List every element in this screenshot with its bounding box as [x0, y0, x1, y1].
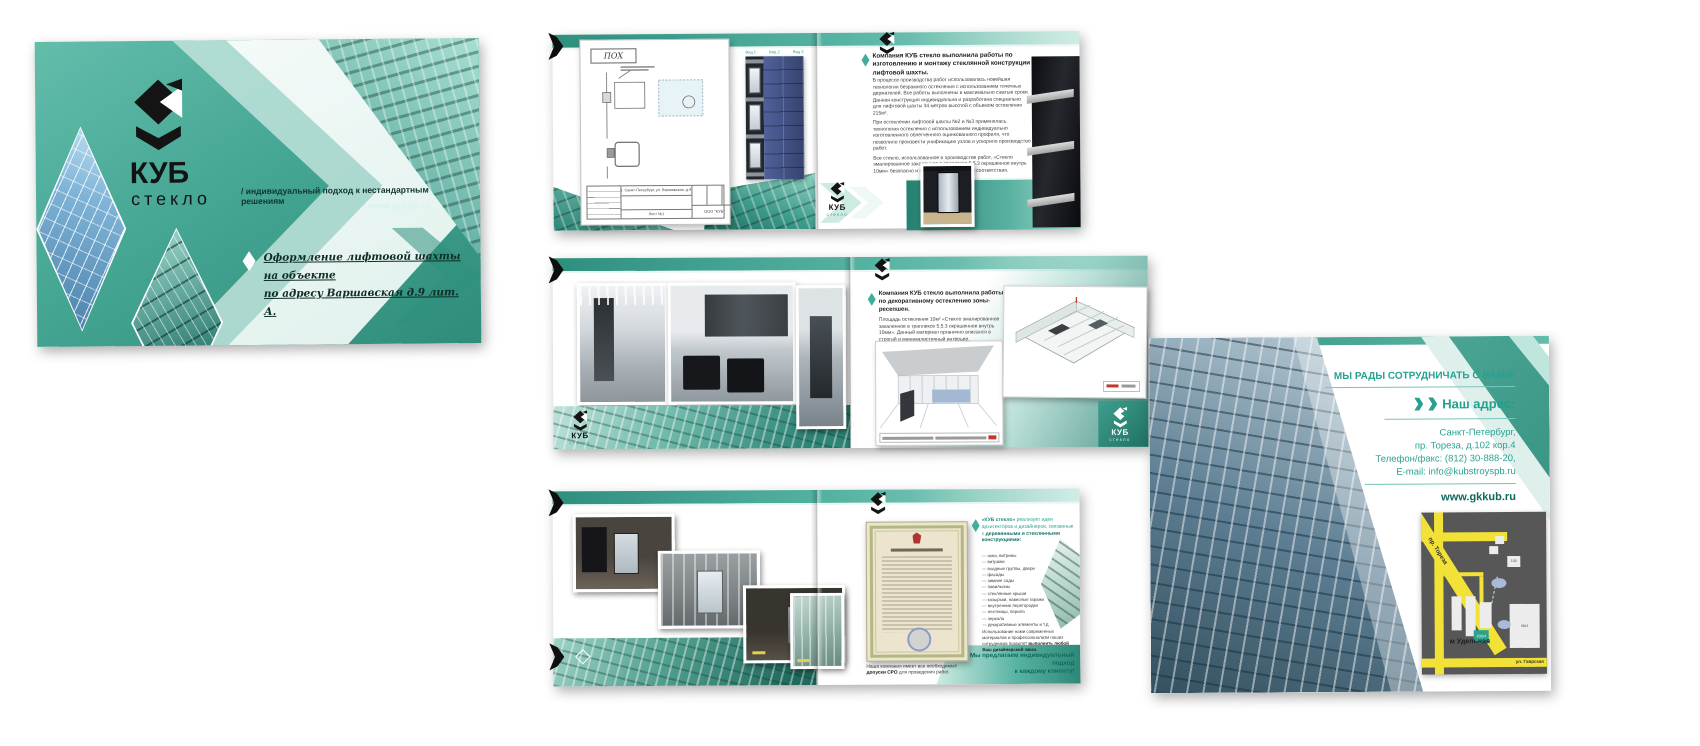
diamond-bullet-icon [972, 519, 980, 532]
elevation-view-labels: Вид 1Вид 2Вид 3 [745, 49, 803, 54]
services-lead: «КУБ стекло» реализует идеи архитекторов… [982, 517, 1076, 544]
map-metro-label: м Удельная [1450, 638, 1490, 645]
project-line: по адресу Варшавская д.9 лит. А. [264, 286, 459, 318]
kub-logo-icon [573, 410, 587, 431]
header-band [552, 489, 1079, 507]
brand-name: КУБ [829, 203, 846, 212]
kub-logo-icon [830, 182, 844, 203]
brand-name: КУБ [1111, 428, 1128, 437]
title-block-grid [692, 186, 736, 205]
kub-logo-icon [875, 258, 890, 281]
map-building [1452, 596, 1462, 630]
diamond-bullet-icon [243, 251, 256, 271]
map-street-label: ул. Гаврская [1516, 659, 1544, 664]
elevator-door-column [745, 56, 764, 179]
photo-interior-partition [796, 285, 847, 429]
shaft-elevation-drawing [745, 56, 804, 179]
photo-glass-interior [790, 593, 844, 669]
lead-bold: деревянными и стеклянными конструкциями: [982, 530, 1060, 543]
glass-facade-photo [37, 128, 125, 330]
title-block-company: ООО "КУБ" [692, 205, 736, 218]
brand-subname: стекло [1109, 437, 1130, 442]
drawing-sketch [585, 64, 724, 183]
round-stamp-icon [907, 627, 931, 651]
photo-elevator [920, 163, 974, 227]
location-map: пр. Тореза 98к1 100 102к4 м Удельная ул.… [1421, 512, 1547, 675]
brand-name: КУБ [571, 431, 588, 440]
kub-corner-card: КУБ стекло [1098, 401, 1148, 447]
address-line: Санкт-Петербург, [1299, 426, 1515, 440]
address-line: Телефон/факс: (812) 30-888-20, [1300, 452, 1516, 466]
website-url: www.gkkub.ru [1350, 491, 1516, 504]
service-item: — декоративные элементы и т.д. [982, 621, 1068, 628]
sro-certificate [866, 521, 969, 662]
map-pond [1491, 578, 1506, 588]
kub-logo-lockup: КУБ стекло [569, 410, 591, 445]
kub-logo-icon [879, 31, 894, 54]
interior-render [876, 341, 1000, 430]
services-note: Использование нами современных материало… [982, 629, 1076, 653]
spread-elevator-shaft: ПОХ г. Санкт-Пет [552, 31, 1080, 231]
address-line: E-mail: info@kubstroyspb.ru [1300, 465, 1516, 479]
render-sheet-axonometric [1002, 285, 1147, 398]
sro-text: Наша компания имеет все необходимые [866, 664, 957, 669]
address-block: Санкт-Петербург,пр. Тореза, д.102 кор.4Т… [1299, 426, 1515, 479]
map-building [1480, 602, 1492, 628]
kub-logo-icon [1113, 407, 1127, 428]
brand-subname: стекло [131, 189, 211, 209]
axonometric-render [1003, 286, 1144, 395]
title-block-address: г. Санкт-Петербург, ул. Варшавская, д.9 [621, 186, 691, 196]
map-building-100: 100 [1507, 556, 1520, 567]
certificate-text-lines [882, 556, 952, 632]
title-block-sheet: Лист №1 [622, 209, 692, 218]
view-label: Вид 1 [745, 49, 756, 54]
cover-project-title: Оформление лифтовой шахты на объекте по … [242, 246, 461, 320]
section-heading: Компания КУБ стекло выполнила работы по … [879, 290, 1007, 314]
address-line: пр. Тореза, д.102 кор.4 [1300, 439, 1516, 453]
sro-text: для проведения работ. [899, 671, 950, 676]
cover-diamond-photo-facade [35, 126, 127, 332]
body-paragraph: В процессе производства работ использова… [873, 77, 1031, 117]
certificate-title-bar [891, 548, 943, 551]
spread-services: «КУБ стекло» реализует идеи архитекторов… [552, 489, 1080, 687]
section-body: В процессе производства работ использова… [873, 77, 1032, 177]
kub-logo-icon [870, 492, 885, 515]
sro-note: Наша компания имеет все необходимые допу… [866, 664, 972, 677]
kub-logo-lockup: КУБ стекло [1109, 407, 1131, 442]
sro-bold: допуски СРО [866, 671, 898, 676]
brand-mention: «КУБ стекло» [982, 517, 1017, 523]
diamond-bullet-icon [861, 54, 869, 67]
map-building [1489, 546, 1498, 554]
technical-drawing-sheet: ПОХ г. Санкт-Пет [579, 39, 730, 226]
closing-line: Мы предлагаем индивидуальный подход [970, 652, 1074, 667]
address-label: Наш адрес: [1442, 396, 1515, 411]
body-paragraph: При остеклении лифтовой шахты №2 и №3 пр… [873, 119, 1031, 153]
brand-subname: стекло [827, 212, 848, 217]
title-block-grid [587, 186, 621, 218]
section-body: Площадь остекления 10м² «Стекло эмалиров… [879, 316, 1003, 343]
back-page-contacts: МЫ РАДЫ СОТРУДНИЧАТЬ С ВАМИ! Наш адрес: … [1149, 336, 1551, 693]
map-pond [1498, 620, 1511, 629]
kub-logo-lockup: КУБ стекло [826, 182, 848, 217]
view-label: Вид 3 [793, 49, 804, 54]
kub-logo-icon [134, 77, 183, 153]
brochure-collage: КУБ стекло / индивидуальный подход к нес… [0, 0, 1700, 746]
brand-subname: стекло [569, 440, 590, 445]
shaft-3d-render [1031, 56, 1080, 227]
drawing-title-block: г. Санкт-Петербург, ул. Варшавская, д.9 … [586, 185, 724, 220]
map-building [1495, 536, 1504, 544]
map-building-98k1: 98к1 [1510, 604, 1540, 648]
closing-line: к каждому клиенту! [1015, 668, 1075, 675]
address-label-row: Наш адрес: [1329, 396, 1515, 412]
chevron-icon [1414, 398, 1423, 411]
cover-diamond-photo-roof [130, 227, 224, 347]
brand-name: КУБ [130, 159, 190, 190]
view-label: Вид 2 [769, 49, 780, 54]
render-sheet-perspective [875, 340, 1003, 446]
glass-panel-column [763, 56, 804, 179]
cover-page: КУБ стекло / индивидуальный подход к нес… [35, 38, 482, 347]
chevron-icon [1428, 397, 1437, 410]
render-title-strip [879, 432, 999, 443]
project-line: Оформление лифтовой шахты на объекте [264, 250, 461, 282]
divider-rule [1365, 483, 1516, 485]
contacts-title: МЫ РАДЫ СОТРУДНИЧАТЬ С ВАМИ! [1319, 370, 1515, 382]
title-block-body [621, 196, 691, 209]
glass-roof-photo [132, 229, 222, 347]
photo-interior-1 [577, 283, 669, 405]
spread-reception: КУБ стекло Компания КУБ стекло выполнила… [553, 256, 1149, 450]
services-list: — окна, витрины— витражи— входные группы… [982, 553, 1068, 628]
photo-interior-lounge [668, 282, 797, 405]
section-heading: Компания КУБ стекло выполнила работы по … [872, 51, 1044, 77]
drawing-stamp: ПОХ [590, 48, 636, 63]
cover-website: / www.gkkub.ru [260, 200, 430, 211]
